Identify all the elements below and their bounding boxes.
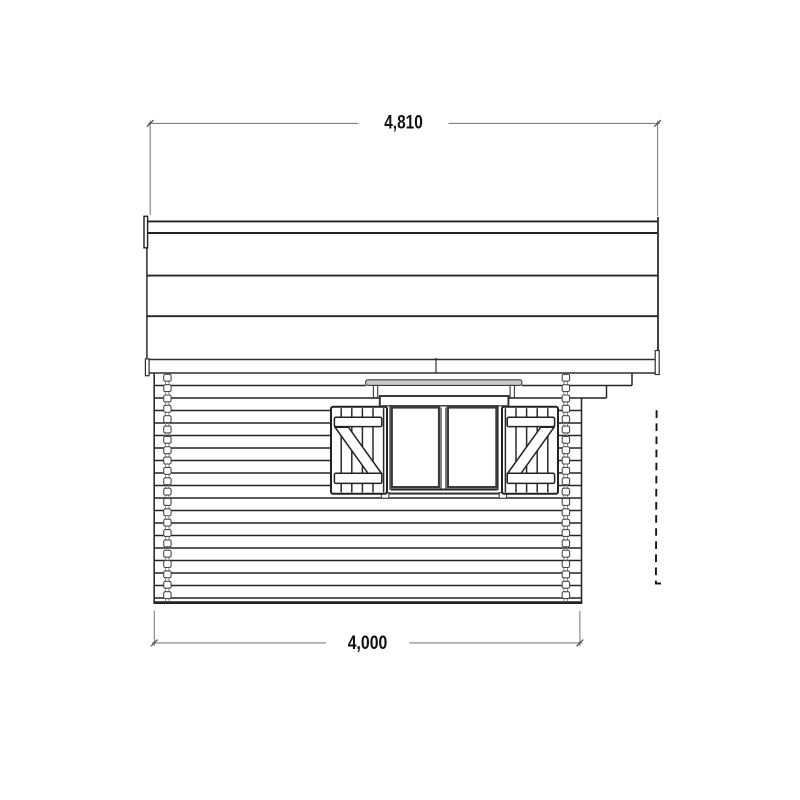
svg-text:4,810: 4,810 xyxy=(384,113,423,134)
svg-text:4,000: 4,000 xyxy=(348,633,388,654)
